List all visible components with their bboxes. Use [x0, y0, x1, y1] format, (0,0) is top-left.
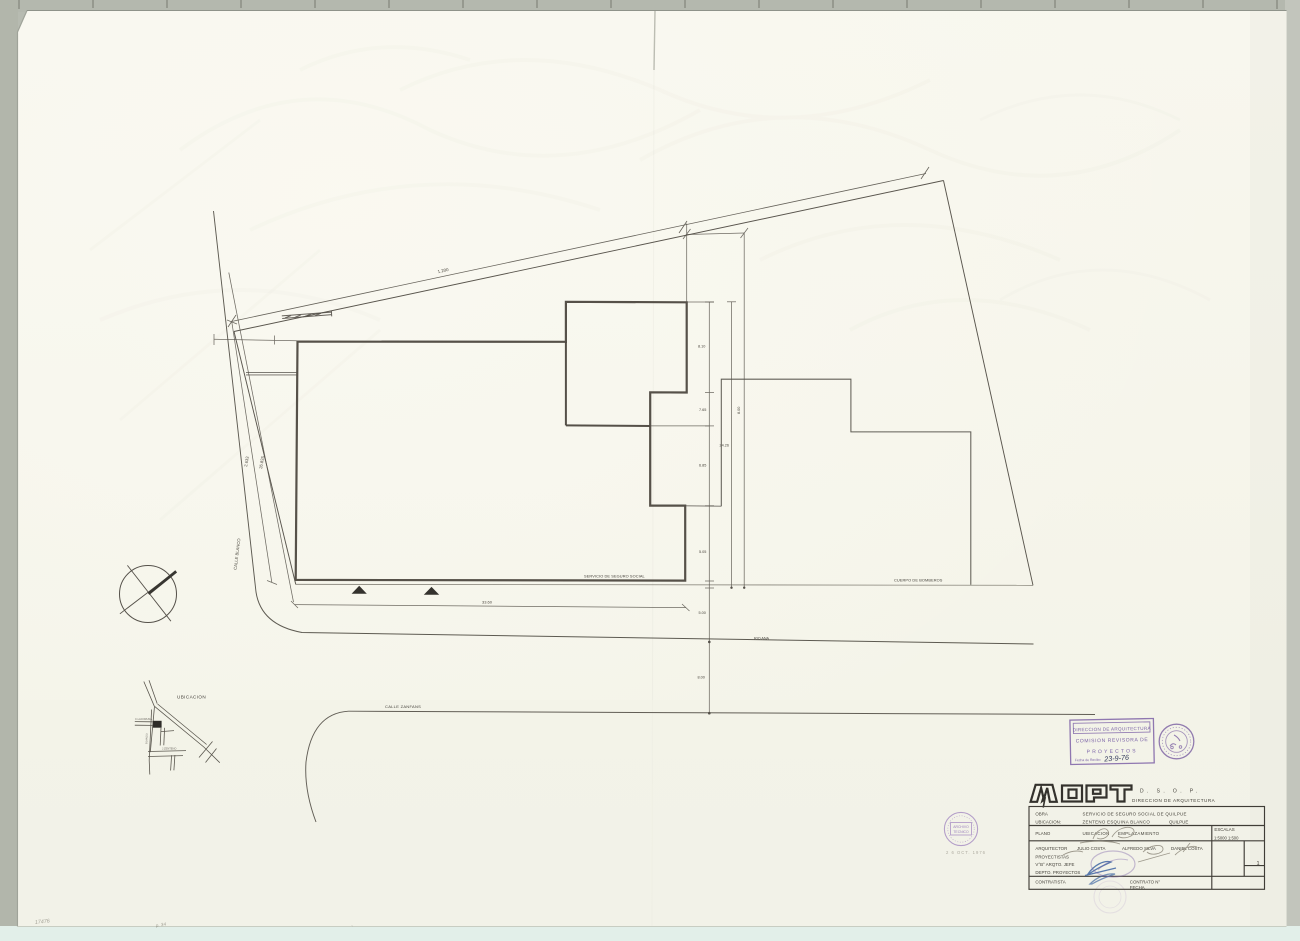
svg-text:Fecha de Recibo: Fecha de Recibo [1075, 758, 1101, 762]
svg-text:SERVICIO DE SEGURO SOCIAL: SERVICIO DE SEGURO SOCIAL DE QUILPUE [1083, 812, 1187, 817]
svg-text:1: 1 [1257, 861, 1260, 867]
svg-text:C.LACORUNA: C.LACORUNA [135, 717, 152, 721]
svg-text:5.05: 5.05 [699, 550, 706, 554]
svg-text:PROYECTISTAS: PROYECTISTAS [1035, 854, 1069, 859]
svg-text:ARQUITECTOR: ARQUITECTOR [1035, 846, 1067, 851]
svg-text:33.60: 33.60 [482, 599, 493, 604]
svg-text:ZENTENO ESQUINA BLANCO: ZENTENO ESQUINA BLANCO [1083, 820, 1151, 825]
svg-text:PLANO: PLANO [1035, 831, 1050, 836]
svg-text:FECHA: FECHA [1130, 885, 1145, 890]
svg-text:ARCHIVO: ARCHIVO [953, 825, 969, 829]
svg-text:DEPTO. PROYECTOS: DEPTO. PROYECTOS [1035, 870, 1080, 875]
svg-text:6.85: 6.85 [699, 463, 706, 467]
svg-text:CUERPO DE BOMBEROS: CUERPO DE BOMBEROS [894, 577, 943, 582]
svg-text:BLANCO: BLANCO [144, 733, 149, 744]
svg-text:1:5000 1:500: 1:5000 1:500 [1214, 836, 1239, 841]
svg-text:7.65: 7.65 [699, 408, 706, 412]
svg-text:8.10: 8.10 [698, 345, 705, 349]
svg-text:UBICACION:: UBICACION: [1035, 820, 1061, 825]
svg-text:8.00: 8.00 [737, 407, 741, 414]
svg-text:CONTRATISTA: CONTRATISTA [1035, 879, 1065, 884]
svg-text:OBRA: OBRA [1035, 812, 1048, 817]
svg-text:EMPLAZAMIENTO: EMPLAZAMIENTO [1118, 831, 1160, 836]
svg-text:ESCALAS: ESCALAS [1214, 827, 1234, 832]
svg-text:TECNICO: TECNICO [953, 830, 969, 834]
svg-text:2 6 OCT. 1976: 2 6 OCT. 1976 [946, 850, 986, 855]
svg-text:JULIO COSTA: JULIO COSTA [1077, 846, 1106, 851]
svg-text:V°B° ARQTO. JEFE: V°B° ARQTO. JEFE [1035, 862, 1074, 867]
svg-text:SERVICIO DE SEGURO SOCIAL: SERVICIO DE SEGURO SOCIAL [584, 574, 646, 579]
svg-text:CALLE ZANFANS: CALLE ZANFANS [385, 704, 421, 709]
svg-text:5.00: 5.00 [699, 611, 706, 615]
svg-text:QUILPUE: QUILPUE [1169, 820, 1188, 825]
svg-text:DIRECCION DE ARQUITECTURA: DIRECCION DE ARQUITECTURA [1132, 798, 1216, 803]
svg-text:23-9-76: 23-9-76 [1103, 753, 1129, 764]
svg-text:D. S. O. P.: D. S. O. P. [1140, 789, 1201, 795]
svg-text:.,: ., [351, 922, 353, 927]
svg-text:CONTRATO N°: CONTRATO N° [1130, 879, 1161, 884]
svg-text:J.ZENTENO: J.ZENTENO [162, 747, 176, 751]
svg-text:8.00: 8.00 [698, 676, 705, 680]
svg-text:UBICACION: UBICACION [177, 694, 206, 699]
svg-text:RIO ANA: RIO ANA [754, 637, 769, 641]
